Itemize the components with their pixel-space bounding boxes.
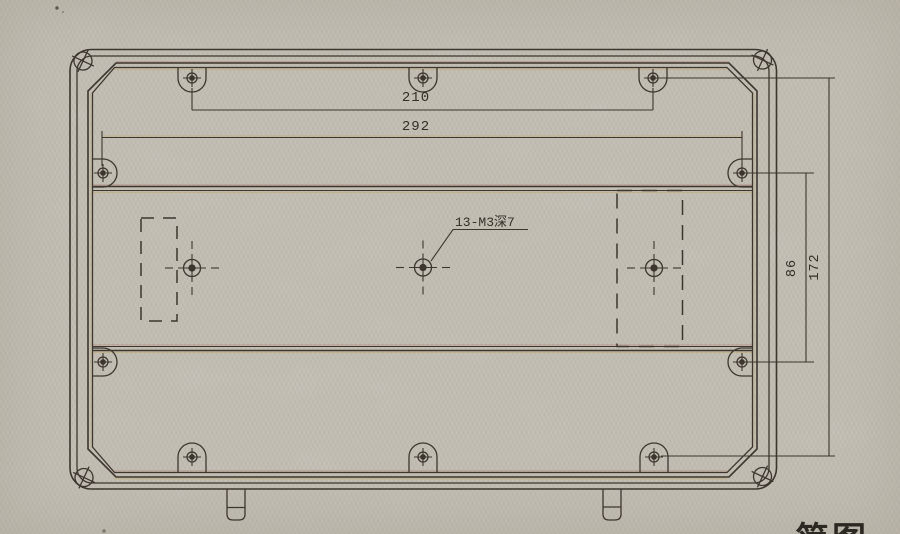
- clipped-caption: 简图: [795, 521, 895, 534]
- dim-210-label: 210: [402, 90, 430, 106]
- technical-drawing: 210 292 86 172 13-M3深7: [0, 0, 900, 534]
- hole-callout-label: 13-M3深7: [455, 215, 515, 230]
- dim-292-label: 292: [402, 119, 430, 135]
- scanned-drawing-photo: 210 292 86 172 13-M3深7 简图: [0, 0, 900, 534]
- caption-fragment-text: 简图: [795, 521, 869, 534]
- dim-86-label: 86: [785, 259, 800, 277]
- dim-172-label: 172: [808, 253, 823, 280]
